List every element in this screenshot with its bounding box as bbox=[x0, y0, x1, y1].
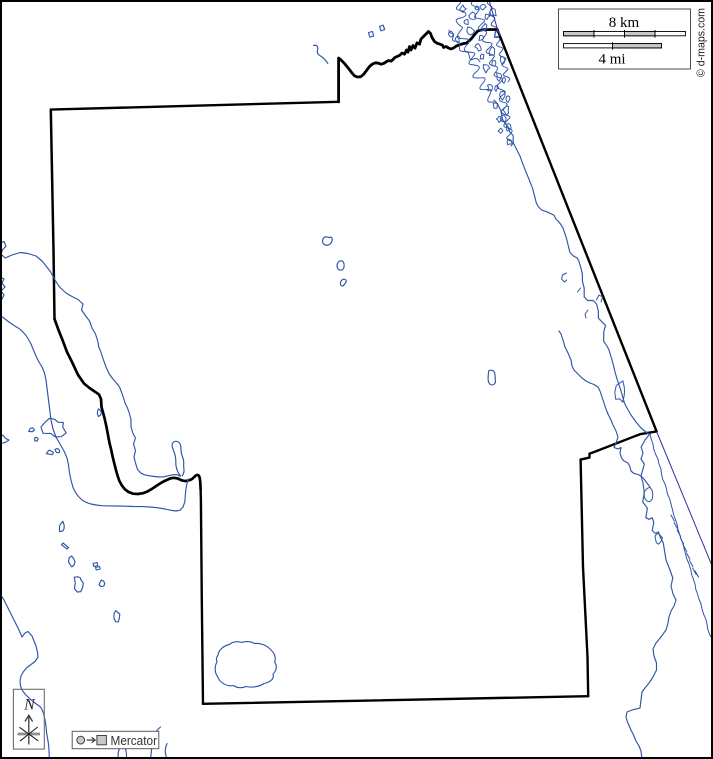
svg-text:Mercator: Mercator bbox=[111, 733, 158, 748]
svg-text:4 mi: 4 mi bbox=[598, 52, 625, 68]
svg-text:© d-maps.com: © d-maps.com bbox=[696, 8, 708, 77]
svg-text:N: N bbox=[23, 697, 36, 714]
svg-text:8 km: 8 km bbox=[609, 15, 640, 31]
